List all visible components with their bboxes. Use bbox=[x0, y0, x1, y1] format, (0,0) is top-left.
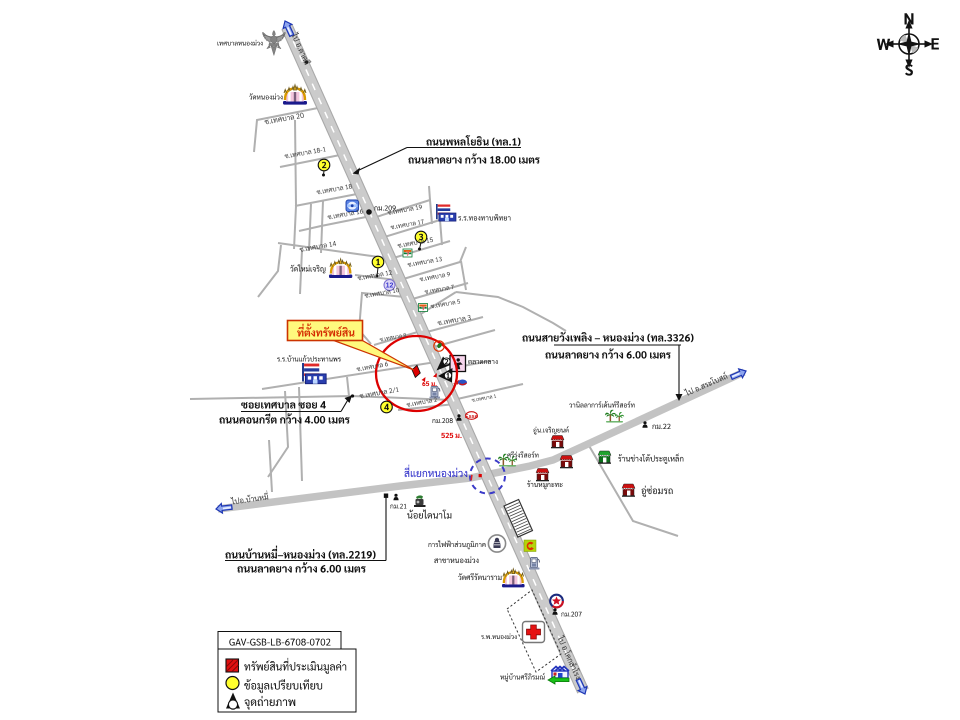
svg-text:Esso: Esso bbox=[465, 414, 479, 420]
svg-text:12: 12 bbox=[386, 283, 394, 290]
